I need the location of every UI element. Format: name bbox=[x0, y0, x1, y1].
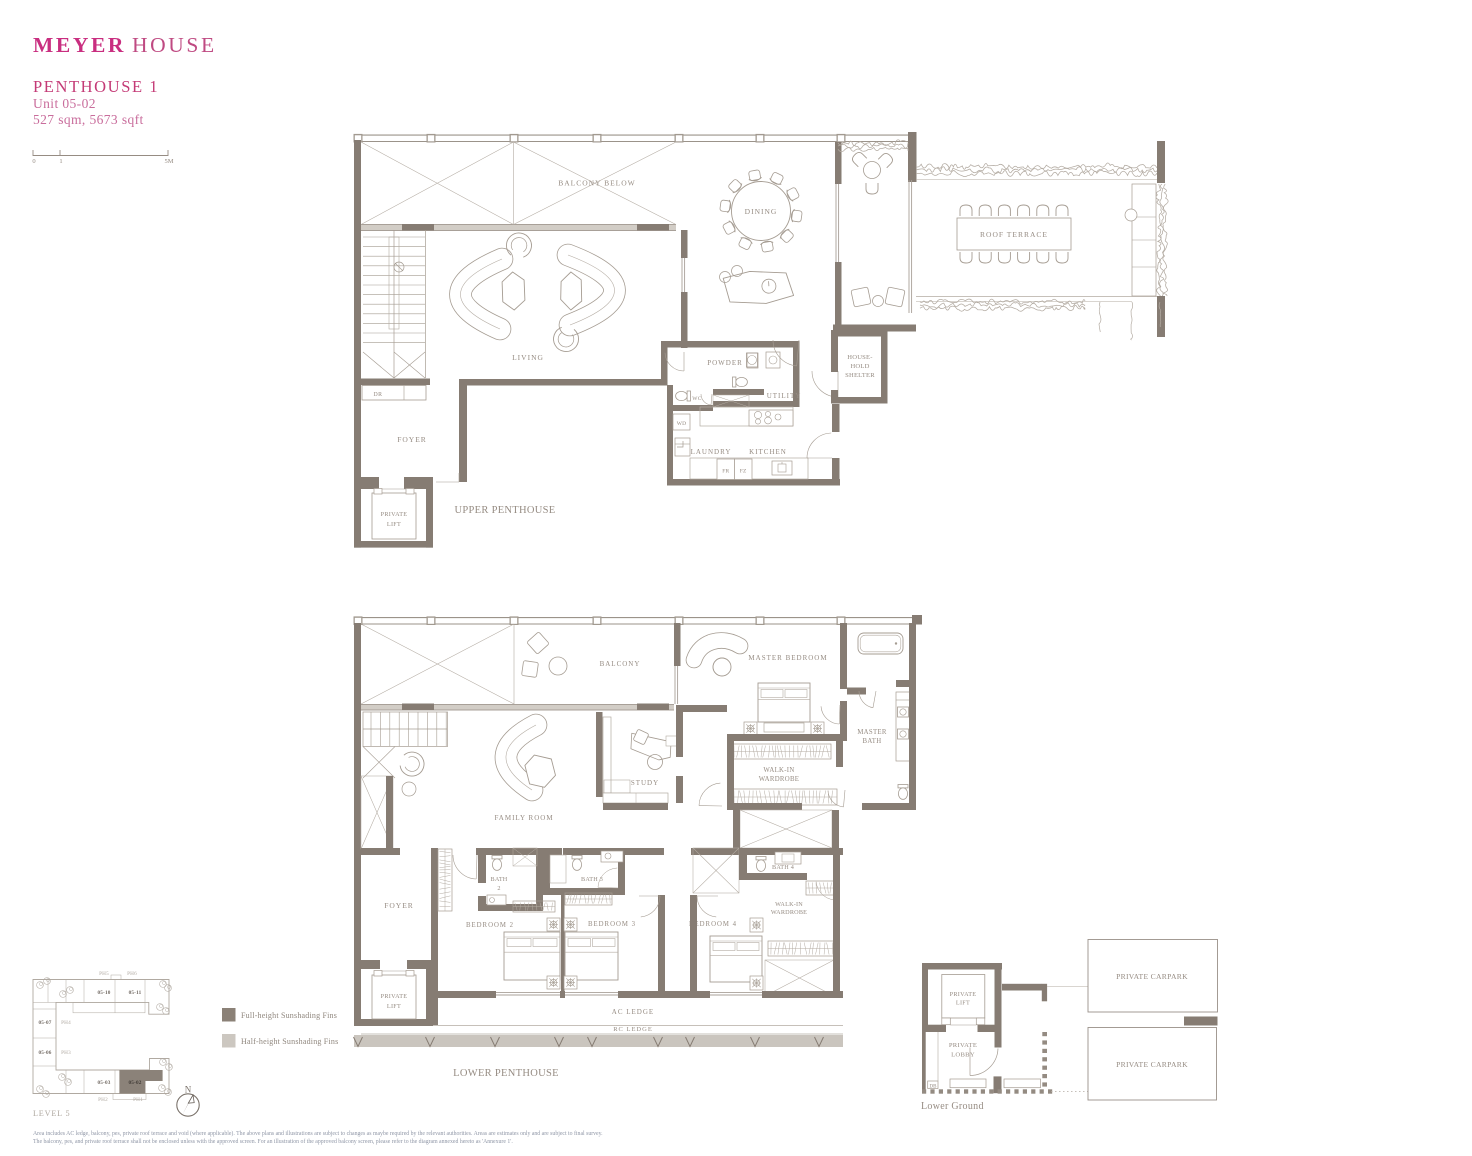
svg-text:PH2: PH2 bbox=[98, 1097, 108, 1103]
svg-text:PH5: PH5 bbox=[99, 971, 109, 977]
svg-text:UTILITY: UTILITY bbox=[767, 392, 802, 400]
svg-text:STUDY: STUDY bbox=[631, 779, 659, 787]
svg-text:LIFT: LIFT bbox=[387, 521, 401, 528]
svg-text:Area includes AC ledge, balcon: Area includes AC ledge, balcony, pes, pr… bbox=[33, 1130, 603, 1137]
svg-text:LIFT: LIFT bbox=[956, 1000, 970, 1007]
svg-text:LIFT: LIFT bbox=[387, 1003, 401, 1010]
svg-text:LIVING: LIVING bbox=[512, 353, 544, 362]
svg-text:05-03: 05-03 bbox=[97, 1080, 110, 1086]
svg-text:WC: WC bbox=[692, 396, 701, 402]
svg-text:MASTER BEDROOM: MASTER BEDROOM bbox=[748, 654, 827, 662]
svg-text:PH1: PH1 bbox=[133, 1097, 143, 1103]
svg-text:UPPER PENTHOUSE: UPPER PENTHOUSE bbox=[454, 505, 555, 516]
svg-text:MEYERHOUSE: MEYERHOUSE bbox=[33, 33, 217, 57]
svg-text:PH3: PH3 bbox=[61, 1050, 71, 1056]
svg-text:RC LEDGE: RC LEDGE bbox=[613, 1026, 653, 1033]
svg-text:DINING: DINING bbox=[745, 207, 778, 216]
svg-text:SHELTER: SHELTER bbox=[845, 372, 875, 379]
svg-text:LOWER PENTHOUSE: LOWER PENTHOUSE bbox=[453, 1068, 559, 1079]
svg-text:BATH 4: BATH 4 bbox=[772, 864, 794, 871]
svg-text:05-07: 05-07 bbox=[38, 1020, 51, 1026]
svg-text:WALK-IN: WALK-IN bbox=[775, 901, 803, 908]
svg-text:PRIVATE: PRIVATE bbox=[381, 511, 408, 518]
svg-text:FOYER: FOYER bbox=[397, 435, 427, 444]
svg-text:HOLD: HOLD bbox=[850, 363, 869, 370]
svg-text:BALCONY: BALCONY bbox=[600, 660, 641, 668]
svg-text:POWDER: POWDER bbox=[707, 359, 743, 367]
svg-text:AC LEDGE: AC LEDGE bbox=[612, 1008, 654, 1016]
svg-text:FAMILY ROOM: FAMILY ROOM bbox=[494, 814, 553, 822]
svg-text:5M: 5M bbox=[164, 158, 173, 165]
svg-text:WALK-IN: WALK-IN bbox=[763, 767, 794, 774]
svg-text:Half-height Sunshading Fins: Half-height Sunshading Fins bbox=[241, 1037, 338, 1046]
svg-text:LEVEL 5: LEVEL 5 bbox=[33, 1109, 70, 1118]
svg-text:WARDROBE: WARDROBE bbox=[771, 909, 807, 916]
svg-text:05-10: 05-10 bbox=[97, 990, 110, 996]
svg-text:PH6: PH6 bbox=[127, 971, 137, 977]
svg-text:05-02: 05-02 bbox=[128, 1080, 141, 1086]
svg-text:05-06: 05-06 bbox=[38, 1050, 51, 1056]
svg-text:BATH: BATH bbox=[863, 738, 882, 745]
svg-text:05-11: 05-11 bbox=[129, 990, 142, 996]
svg-text:DB: DB bbox=[930, 1084, 938, 1089]
svg-text:2: 2 bbox=[497, 885, 500, 892]
svg-text:527 sqm, 5673 sqft: 527 sqm, 5673 sqft bbox=[33, 112, 144, 127]
svg-text:Full-height Sunshading Fins: Full-height Sunshading Fins bbox=[241, 1011, 337, 1020]
svg-text:HOUSE-: HOUSE- bbox=[847, 354, 872, 361]
svg-text:FZ: FZ bbox=[740, 469, 747, 475]
svg-text:WD: WD bbox=[677, 421, 687, 427]
svg-text:BEDROOM 3: BEDROOM 3 bbox=[588, 921, 636, 928]
svg-text:ROOF TERRACE: ROOF TERRACE bbox=[980, 230, 1048, 239]
svg-text:FOYER: FOYER bbox=[384, 901, 414, 910]
svg-text:PRIVATE: PRIVATE bbox=[949, 1042, 977, 1049]
svg-text:MASTER: MASTER bbox=[857, 729, 887, 736]
svg-text:FR: FR bbox=[722, 469, 729, 475]
svg-text:PRIVATE CARPARK: PRIVATE CARPARK bbox=[1116, 1060, 1188, 1069]
svg-text:N: N bbox=[185, 1085, 192, 1095]
svg-text:PRIVATE: PRIVATE bbox=[950, 991, 977, 998]
svg-text:WARDROBE: WARDROBE bbox=[759, 776, 800, 783]
svg-text:1: 1 bbox=[59, 158, 62, 165]
svg-text:PENTHOUSE 1: PENTHOUSE 1 bbox=[33, 77, 159, 96]
svg-text:DR: DR bbox=[373, 392, 382, 398]
svg-text:PRIVATE: PRIVATE bbox=[381, 993, 408, 1000]
svg-text:LOBBY: LOBBY bbox=[951, 1052, 975, 1059]
svg-text:KITCHEN: KITCHEN bbox=[749, 448, 787, 456]
svg-text:BEDROOM 2: BEDROOM 2 bbox=[466, 922, 514, 929]
svg-text:PRIVATE CARPARK: PRIVATE CARPARK bbox=[1116, 972, 1188, 981]
svg-text:LAUNDRY: LAUNDRY bbox=[691, 448, 732, 456]
svg-text:BALCONY BELOW: BALCONY BELOW bbox=[558, 179, 636, 188]
svg-text:The balcony, pes, and private: The balcony, pes, and private roof terra… bbox=[33, 1138, 513, 1145]
svg-text:0: 0 bbox=[32, 158, 35, 165]
svg-text:Unit 05-02: Unit 05-02 bbox=[33, 96, 96, 111]
svg-text:PH4: PH4 bbox=[61, 1020, 71, 1026]
svg-text:BATH: BATH bbox=[491, 876, 508, 883]
svg-text:Lower Ground: Lower Ground bbox=[921, 1101, 984, 1112]
